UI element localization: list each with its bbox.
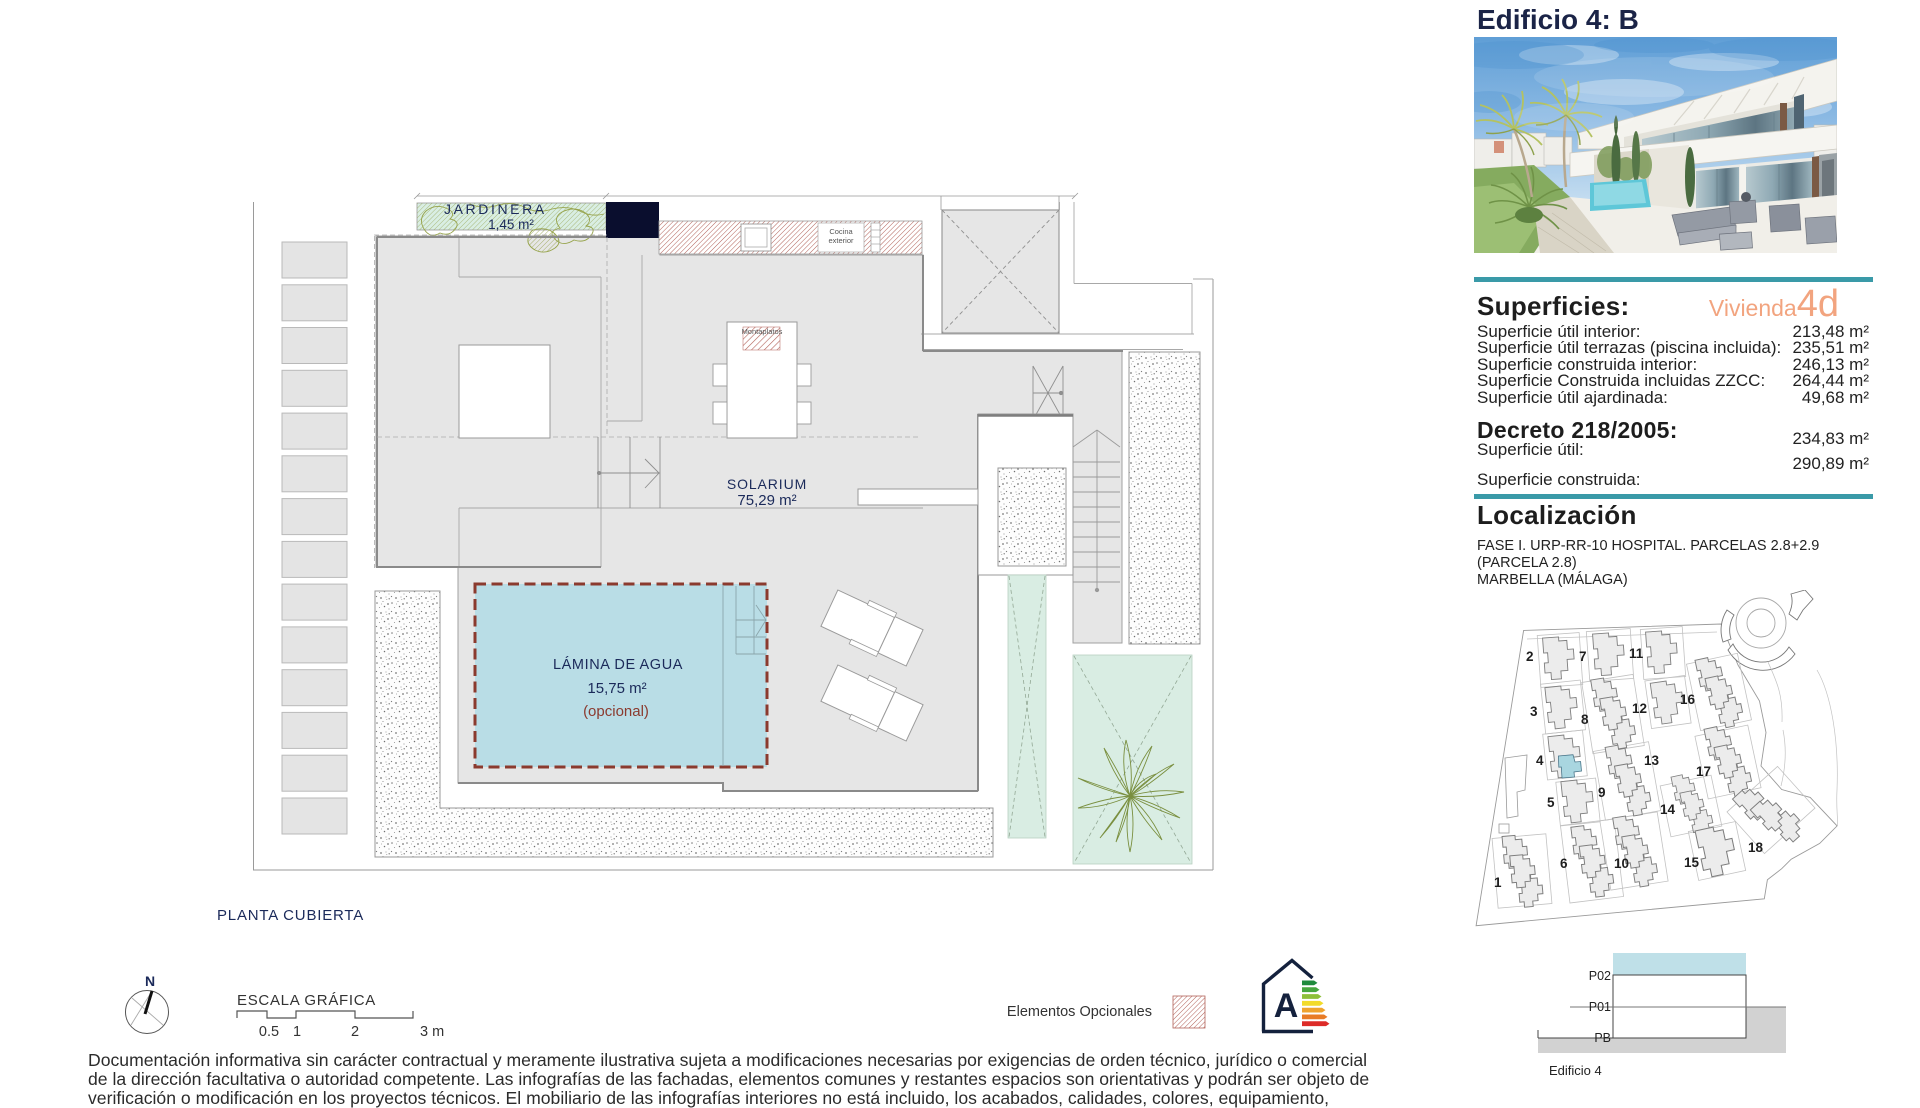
svg-text:P02: P02 xyxy=(1589,969,1611,983)
svg-text:75,29 m²: 75,29 m² xyxy=(737,492,796,509)
svg-text:8: 8 xyxy=(1581,712,1589,727)
svg-text:LÁMINA DE AGUA: LÁMINA DE AGUA xyxy=(553,656,683,673)
svg-text:6: 6 xyxy=(1560,856,1568,871)
svg-text:0.5: 0.5 xyxy=(259,1024,279,1040)
svg-text:1: 1 xyxy=(293,1024,301,1040)
svg-text:15,75 m²: 15,75 m² xyxy=(587,680,646,697)
svg-text:2: 2 xyxy=(1526,649,1534,664)
svg-text:12: 12 xyxy=(1632,701,1647,716)
svg-text:A: A xyxy=(1274,987,1299,1025)
svg-text:3: 3 xyxy=(1530,704,1538,719)
svg-text:PB: PB xyxy=(1594,1031,1611,1045)
svg-text:1,45 m²: 1,45 m² xyxy=(488,217,534,232)
svg-text:N: N xyxy=(145,973,155,989)
svg-text:9: 9 xyxy=(1598,785,1606,800)
svg-text:17: 17 xyxy=(1696,764,1711,779)
svg-text:2: 2 xyxy=(351,1024,359,1040)
svg-text:Montaplatos: Montaplatos xyxy=(742,327,783,336)
svg-text:18: 18 xyxy=(1748,840,1764,855)
svg-text:4: 4 xyxy=(1536,753,1544,768)
svg-text:P01: P01 xyxy=(1589,1000,1611,1014)
svg-text:5: 5 xyxy=(1547,795,1555,810)
svg-text:Cocina: Cocina xyxy=(829,227,853,236)
svg-text:16: 16 xyxy=(1680,692,1696,707)
svg-text:11: 11 xyxy=(1629,646,1644,661)
svg-text:10: 10 xyxy=(1614,856,1629,871)
svg-text:1: 1 xyxy=(1494,875,1502,890)
svg-text:PLANTA CUBIERTA: PLANTA CUBIERTA xyxy=(217,907,364,924)
svg-text:JARDINERA: JARDINERA xyxy=(444,201,547,217)
svg-text:SOLARIUM: SOLARIUM xyxy=(727,476,807,492)
svg-text:7: 7 xyxy=(1579,649,1587,664)
svg-text:ESCALA GRÁFICA: ESCALA GRÁFICA xyxy=(237,992,376,1009)
svg-text:Elementos Opcionales: Elementos Opcionales xyxy=(1007,1004,1152,1020)
svg-text:14: 14 xyxy=(1660,802,1676,817)
svg-text:15: 15 xyxy=(1684,855,1700,870)
svg-text:3 m: 3 m xyxy=(420,1024,444,1040)
svg-text:(opcional): (opcional) xyxy=(583,703,649,720)
svg-text:13: 13 xyxy=(1644,753,1660,768)
svg-text:exterior: exterior xyxy=(828,236,854,245)
